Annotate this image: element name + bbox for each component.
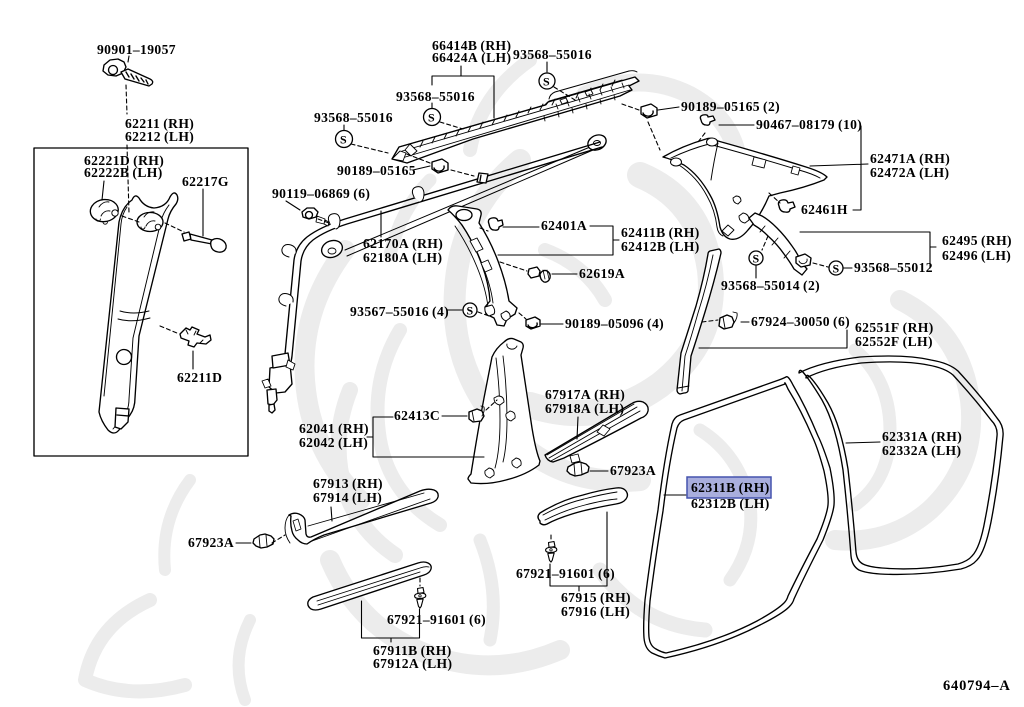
svg-text:62619A: 62619A	[579, 266, 625, 281]
svg-text:67912A (LH): 67912A (LH)	[373, 656, 452, 672]
svg-text:67923A: 67923A	[610, 463, 656, 478]
svg-text:90189–05096 (4): 90189–05096 (4)	[565, 316, 664, 332]
svg-text:67924–30050 (6): 67924–30050 (6)	[751, 314, 850, 330]
svg-text:640794–A: 640794–A	[943, 678, 1011, 694]
svg-text:93568–55014 (2): 93568–55014 (2)	[721, 278, 820, 294]
svg-text:S: S	[340, 133, 347, 147]
svg-text:67921–91601 (6): 67921–91601 (6)	[387, 612, 486, 628]
svg-text:62042 (LH): 62042 (LH)	[299, 435, 368, 451]
svg-text:62413C: 62413C	[394, 408, 440, 423]
svg-text:62412B (LH): 62412B (LH)	[621, 239, 700, 255]
svg-text:S: S	[833, 262, 840, 276]
svg-text:62180A (LH): 62180A (LH)	[363, 250, 442, 266]
svg-text:S: S	[753, 252, 760, 266]
svg-text:93567–55016 (4): 93567–55016 (4)	[350, 304, 449, 320]
svg-text:67918A (LH): 67918A (LH)	[545, 401, 624, 417]
svg-text:90901–19057: 90901–19057	[97, 42, 176, 57]
svg-text:S: S	[543, 75, 550, 89]
svg-text:90467–08179 (10): 90467–08179 (10)	[756, 117, 862, 133]
svg-text:62212 (LH): 62212 (LH)	[125, 129, 194, 145]
svg-text:62211D: 62211D	[177, 370, 222, 385]
svg-text:66424A (LH): 66424A (LH)	[432, 50, 511, 66]
svg-text:S: S	[467, 304, 474, 318]
svg-text:90189–05165: 90189–05165	[337, 163, 416, 178]
svg-text:62332A (LH): 62332A (LH)	[882, 443, 961, 459]
svg-text:93568–55016: 93568–55016	[396, 89, 475, 104]
svg-text:67916 (LH): 67916 (LH)	[561, 604, 630, 620]
svg-text:93568–55016: 93568–55016	[513, 47, 592, 62]
svg-text:62496 (LH): 62496 (LH)	[942, 248, 1011, 264]
svg-text:93568–55012: 93568–55012	[854, 260, 933, 275]
svg-text:62311B (RH): 62311B (RH)	[691, 480, 770, 496]
svg-text:62222B (LH): 62222B (LH)	[84, 165, 163, 181]
svg-text:62217G: 62217G	[182, 174, 229, 189]
svg-text:62552F (LH): 62552F (LH)	[855, 334, 933, 350]
svg-text:62401A: 62401A	[541, 218, 587, 233]
svg-text:67914 (LH): 67914 (LH)	[313, 490, 382, 506]
svg-text:62472A (LH): 62472A (LH)	[870, 165, 949, 181]
svg-text:90189–05165 (2): 90189–05165 (2)	[681, 99, 780, 115]
svg-text:90119–06869 (6): 90119–06869 (6)	[272, 186, 370, 202]
svg-text:62312B (LH): 62312B (LH)	[691, 496, 770, 512]
svg-text:62495 (RH): 62495 (RH)	[942, 233, 1012, 249]
svg-text:67923A: 67923A	[188, 535, 234, 550]
svg-text:62461H: 62461H	[801, 202, 848, 217]
svg-text:67921–91601 (6): 67921–91601 (6)	[516, 566, 615, 582]
svg-text:93568–55016: 93568–55016	[314, 110, 393, 125]
svg-text:S: S	[428, 111, 435, 125]
